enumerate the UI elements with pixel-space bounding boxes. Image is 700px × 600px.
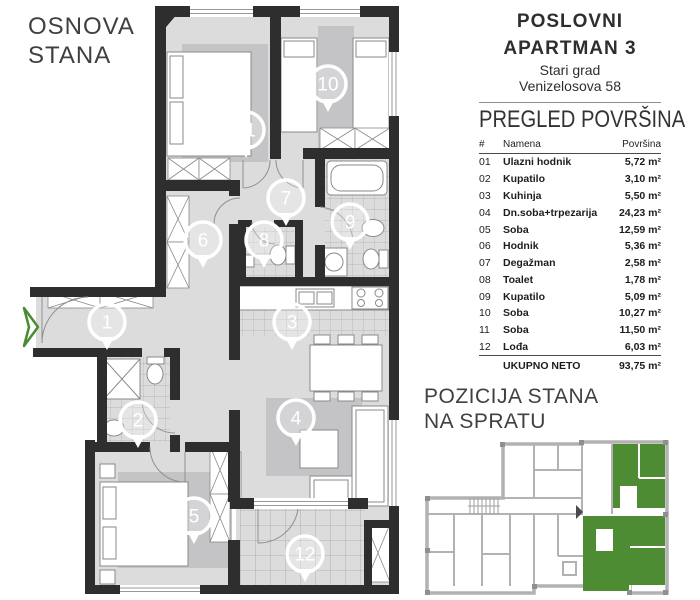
apartment-title-line2: APARTMAN 3 [479, 35, 661, 62]
area-row-number: 03 [479, 188, 503, 205]
area-row-number: 04 [479, 204, 503, 221]
pillow [170, 102, 183, 144]
area-row-number: 12 [479, 339, 503, 356]
area-row-number: 07 [479, 255, 503, 272]
area-row-value: 5,09 m² [603, 288, 661, 305]
page-title: OSNOVA STANA [28, 12, 135, 70]
area-row: 11 Soba 11,50 m² [479, 322, 661, 339]
entrance-arrow-icon [24, 308, 38, 346]
svg-text:11: 11 [236, 121, 256, 142]
area-row: 01 Ulazni hodnik 5,72 m² [479, 154, 661, 171]
area-row-name: Kupatilo [503, 171, 603, 188]
area-row-name: Kupatilo [503, 288, 603, 305]
svg-text:10: 10 [317, 75, 338, 96]
svg-text:12: 12 [294, 545, 315, 566]
stove [352, 287, 388, 309]
area-row-value: 3,10 m² [603, 171, 661, 188]
area-row-number: 02 [479, 171, 503, 188]
position-title-line2: NA SPRATU [424, 409, 599, 434]
info-panel: POSLOVNI APARTMAN 3 Stari grad Venizelos… [479, 8, 661, 375]
svg-text:4: 4 [291, 409, 302, 430]
dining-table [310, 345, 382, 391]
nightstand [100, 570, 115, 584]
areas-table-body: 01 Ulazni hodnik 5,72 m² 02 Kupatilo 3,1… [479, 154, 661, 356]
bathtub-inner [331, 165, 383, 191]
area-row-number: 10 [479, 305, 503, 322]
areas-heading: PREGLED POVRŠINA [479, 106, 632, 134]
col-number: # [479, 139, 503, 154]
chair [314, 335, 330, 344]
area-row-value: 2,58 m² [603, 255, 661, 272]
area-row-value: 6,03 m² [603, 339, 661, 356]
svg-text:8: 8 [259, 231, 270, 252]
apartment-subtitle-line2: Venizelosova 58 [479, 78, 661, 94]
col-name: Namena [503, 139, 603, 154]
toilet-cistern [286, 246, 295, 264]
toilet [363, 249, 379, 269]
area-row: 09 Kupatilo 5,09 m² [479, 288, 661, 305]
area-row-name: Ulazni hodnik [503, 154, 603, 171]
svg-text:5: 5 [189, 507, 200, 528]
area-row-value: 12,59 m² [603, 221, 661, 238]
col-area: Površina [603, 139, 661, 154]
area-row-name: Dn.soba+trpezarija [503, 204, 603, 221]
chair [362, 335, 378, 344]
svg-text:3: 3 [287, 313, 298, 334]
total-label: UKUPNO NETO [503, 356, 603, 375]
area-row-name: Soba [503, 221, 603, 238]
area-row-name: Toalet [503, 271, 603, 288]
total-row: UKUPNO NETO 93,75 m² [479, 356, 661, 375]
chair [338, 335, 354, 344]
area-row-number: 05 [479, 221, 503, 238]
areas-table-header: # Namena Površina [479, 139, 661, 154]
position-title: POZICIJA STANA NA SPRATU [424, 384, 599, 434]
pillow [170, 56, 183, 98]
svg-text:6: 6 [198, 231, 209, 252]
area-row-value: 1,78 m² [603, 271, 661, 288]
area-row-number: 11 [479, 322, 503, 339]
chair [338, 392, 354, 401]
area-row-name: Soba [503, 305, 603, 322]
area-row-number: 08 [479, 271, 503, 288]
toilet-cistern [147, 357, 164, 364]
floor-plan: 123456789101112 [0, 0, 430, 600]
area-row-name: Soba [503, 322, 603, 339]
apartment-subtitle-line1: Stari grad [479, 62, 661, 78]
area-row-number: 06 [479, 238, 503, 255]
area-row: 03 Kuhinja 5,50 m² [479, 188, 661, 205]
chair [362, 392, 378, 401]
area-row-value: 5,72 m² [603, 154, 661, 171]
area-row: 06 Hodnik 5,36 m² [479, 238, 661, 255]
position-minimap [424, 436, 696, 598]
nightstand [100, 464, 115, 478]
toilet-cistern [379, 250, 388, 268]
area-row-name: Degažman [503, 255, 603, 272]
coffee-table [300, 430, 338, 468]
chair [314, 392, 330, 401]
pillow [356, 41, 386, 57]
area-row: 10 Soba 10,27 m² [479, 305, 661, 322]
svg-text:2: 2 [133, 411, 144, 432]
toilet [147, 364, 163, 384]
area-row: 08 Toalet 1,78 m² [479, 271, 661, 288]
area-row-value: 5,50 m² [603, 188, 661, 205]
areas-table: # Namena Površina 01 Ulazni hodnik 5,72 … [479, 139, 661, 375]
area-row-value: 11,50 m² [603, 322, 661, 339]
svg-text:9: 9 [345, 213, 356, 234]
apartment-title-line1: POSLOVNI [479, 8, 661, 35]
area-row: 04 Dn.soba+trpezarija 24,23 m² [479, 204, 661, 221]
area-row-number: 01 [479, 154, 503, 171]
pillow [284, 41, 314, 57]
washing-machine-drum [325, 253, 343, 271]
area-row: 02 Kupatilo 3,10 m² [479, 171, 661, 188]
area-row: 05 Soba 12,59 m² [479, 221, 661, 238]
pillow [103, 487, 116, 519]
area-row-value: 5,36 m² [603, 238, 661, 255]
area-row-value: 10,27 m² [603, 305, 661, 322]
page-title-line1: OSNOVA [28, 12, 135, 41]
pillow [103, 527, 116, 559]
svg-text:7: 7 [281, 189, 292, 210]
area-row-value: 24,23 m² [603, 204, 661, 221]
area-row: 12 Lođa 6,03 m² [479, 339, 661, 356]
divider [479, 102, 661, 103]
position-title-line1: POZICIJA STANA [424, 384, 599, 409]
area-row-name: Kuhinja [503, 188, 603, 205]
area-row-name: Lođa [503, 339, 603, 356]
page-title-line2: STANA [28, 41, 135, 70]
area-row: 07 Degažman 2,58 m² [479, 255, 661, 272]
total-area: 93,75 m² [603, 356, 661, 375]
area-row-name: Hodnik [503, 238, 603, 255]
area-row-number: 09 [479, 288, 503, 305]
svg-text:1: 1 [102, 313, 113, 334]
